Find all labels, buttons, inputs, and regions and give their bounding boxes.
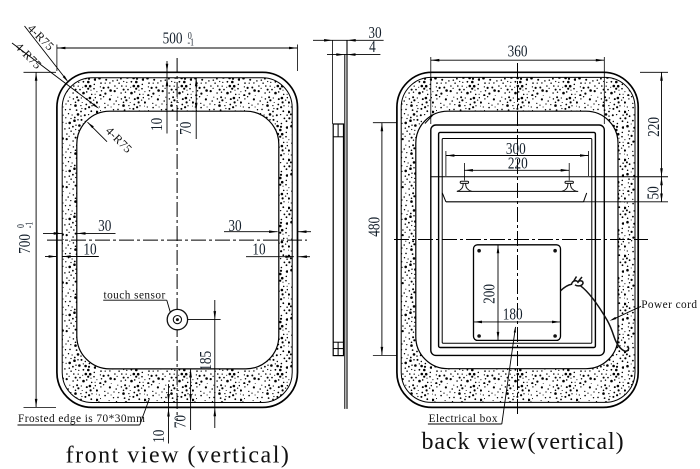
svg-text:Electrical box: Electrical box [429,413,498,425]
svg-text:70: 70 [171,415,190,429]
svg-text:50: 50 [644,186,663,200]
svg-text:10: 10 [148,117,167,131]
svg-text:700: 700 [16,234,35,254]
svg-text:10: 10 [149,429,168,443]
svg-text:180: 180 [503,305,523,324]
svg-text:back view(vertical): back view(vertical) [422,429,625,455]
svg-text:185: 185 [196,351,215,371]
svg-text:30: 30 [98,216,112,235]
svg-text:Frosted edge is 70*30mm: Frosted edge is 70*30mm [18,413,145,425]
svg-text:30: 30 [228,217,242,236]
svg-text:70: 70 [177,121,196,135]
svg-text:220: 220 [645,117,664,137]
svg-text:touch sensor: touch sensor [104,290,166,302]
svg-text:10: 10 [252,240,266,259]
svg-text:front view (vertical): front view (vertical) [66,443,291,469]
svg-text:Power cord: Power cord [641,299,697,311]
svg-text:-1: -1 [24,222,35,228]
svg-text:500: 500 [163,29,183,48]
svg-text:10: 10 [83,240,97,259]
svg-text:-1: -1 [188,37,194,48]
svg-text:360: 360 [508,42,528,61]
svg-text:200: 200 [480,284,499,304]
svg-text:220: 220 [508,154,528,173]
svg-text:4: 4 [369,38,376,57]
svg-text:480: 480 [365,217,384,237]
